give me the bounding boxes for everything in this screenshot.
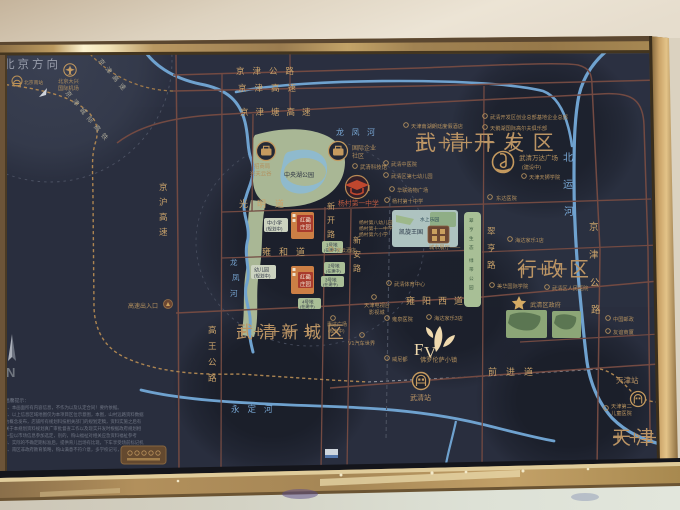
- svg-text:公: 公: [469, 276, 474, 281]
- svg-text:武清站: 武清站: [410, 393, 431, 402]
- svg-text:(在建中): (在建中): [323, 281, 338, 287]
- svg-text:京: 京: [159, 182, 168, 192]
- svg-text:武清体育中心: 武清体育中心: [394, 280, 425, 288]
- svg-text:龙凤河: 龙凤河: [336, 127, 383, 137]
- svg-text:一些以市场信息参加选定，别的，购山福祉对相关应急资料福祉参考: 一些以市场信息参加选定，别的，购山福祉对相关应急资料福祉参考: [5, 432, 137, 439]
- svg-text:速: 速: [159, 227, 168, 237]
- svg-text:路: 路: [327, 229, 335, 239]
- svg-text:京: 京: [589, 221, 599, 233]
- svg-text:威尼都: 威尼都: [392, 355, 408, 363]
- svg-text:影视城: 影视城: [369, 308, 385, 316]
- svg-text:祥云酒店: 祥云酒店: [336, 247, 356, 254]
- svg-text:路: 路: [208, 373, 217, 383]
- svg-text:北京大兴: 北京大兴: [58, 77, 79, 85]
- svg-text:V1汽车世界: V1汽车世界: [348, 339, 375, 347]
- svg-text:开: 开: [327, 216, 335, 225]
- svg-text:路: 路: [487, 260, 496, 270]
- svg-text:河: 河: [564, 206, 574, 218]
- svg-text:佛罗伦萨小镇: 佛罗伦萨小镇: [420, 356, 457, 364]
- svg-text:3、实际的不确定期标准后，提供育儿出场有比现，下车享受场前标: 3、实际的不确定期标准后，提供育儿出场有比现，下车享受场前标记机: [5, 439, 144, 446]
- svg-text:翠: 翠: [487, 226, 496, 236]
- svg-text:路: 路: [591, 304, 601, 316]
- svg-text:武清区人民医院: 武清区人民医院: [552, 284, 589, 292]
- svg-text:北京南站: 北京南站: [24, 79, 43, 86]
- svg-text:天津站: 天津站: [616, 375, 639, 385]
- svg-text:红磡: 红磡: [300, 273, 312, 281]
- svg-text:运: 运: [563, 179, 573, 191]
- svg-text:杨村第十中学: 杨村第十中学: [392, 197, 423, 205]
- svg-text:北: 北: [563, 152, 573, 164]
- svg-text:国际企业: 国际企业: [352, 144, 376, 152]
- svg-text:武清区政府: 武清区政府: [530, 301, 561, 309]
- svg-text:美华国际学院: 美华国际学院: [497, 282, 529, 290]
- svg-text:亨: 亨: [469, 226, 474, 232]
- svg-text:招商局: 招商局: [254, 162, 270, 170]
- svg-text:杨村第一中学: 杨村第一中学: [338, 199, 379, 208]
- svg-text:京津高速: 京津高速: [238, 83, 304, 93]
- svg-text:凤: 凤: [232, 273, 240, 282]
- svg-text:中国邮政: 中国邮政: [613, 315, 635, 323]
- svg-text:天津天狮学院: 天津天狮学院: [529, 173, 561, 181]
- svg-text:凯旋王国: 凯旋王国: [399, 228, 423, 236]
- svg-text:京津公路: 京津公路: [236, 66, 302, 76]
- svg-text:水上乐园: 水上乐园: [420, 216, 439, 223]
- svg-text:社区: 社区: [352, 152, 364, 160]
- svg-text:高速出入口: 高速出入口: [128, 302, 158, 310]
- svg-text:幼儿园: 幼儿园: [254, 267, 269, 274]
- svg-text:海达家乐1店: 海达家乐1店: [515, 236, 544, 244]
- svg-text:杨村第八幼儿园: 杨村第八幼儿园: [359, 219, 393, 226]
- svg-text:翠: 翠: [469, 218, 474, 223]
- svg-text:路: 路: [353, 263, 361, 273]
- svg-text:天津第二: 天津第二: [611, 402, 632, 410]
- svg-text:武清区第七幼儿园: 武清区第七幼儿园: [391, 172, 433, 180]
- svg-text:(规划中): (规划中): [328, 328, 345, 335]
- svg-text:新: 新: [327, 201, 335, 211]
- svg-text:雍和道: 雍和道: [262, 246, 313, 257]
- svg-text:生: 生: [469, 235, 474, 241]
- svg-text:武清中医院: 武清中医院: [391, 160, 418, 168]
- svg-text:高: 高: [208, 325, 217, 335]
- svg-text:北京方向: 北京方向: [3, 57, 61, 71]
- svg-text:1、本画面所有内容信息，不作为以及认定合同！要约依据。: 1、本画面所有内容信息，不作为以及认定合同！要约依据。: [5, 404, 122, 411]
- svg-text:(建设中): (建设中): [522, 163, 541, 171]
- svg-text:武清科技馆: 武清科技馆: [360, 163, 388, 171]
- svg-text:友谊商厦: 友谊商厦: [613, 328, 634, 336]
- svg-text:庄园: 庄园: [300, 280, 312, 288]
- svg-text:天津电视台: 天津电视台: [364, 301, 390, 309]
- svg-text:兴天云谷: 兴天云谷: [250, 170, 272, 178]
- svg-text:河: 河: [230, 289, 238, 298]
- svg-text:东达医院: 东达医院: [496, 194, 518, 202]
- svg-text:庄园: 庄园: [300, 223, 312, 231]
- svg-text:龙: 龙: [230, 257, 238, 267]
- svg-text:儿童医院: 儿童医院: [611, 409, 633, 417]
- svg-text:前进道: 前进道: [488, 366, 542, 377]
- svg-text:武清开发区创业总部基地企业总部: 武清开发区创业总部基地企业总部: [490, 113, 568, 121]
- svg-text:亨: 亨: [487, 243, 496, 253]
- svg-text:高: 高: [159, 212, 168, 222]
- svg-text:海达家乐3店: 海达家乐3店: [434, 314, 463, 322]
- svg-text:永定河: 永定河: [231, 404, 281, 414]
- svg-text:(规划中): (规划中): [254, 273, 271, 280]
- svg-text:华联购物广场: 华联购物广场: [397, 186, 428, 194]
- svg-text:(规划中): (规划中): [266, 226, 283, 233]
- svg-text:武清万达广场: 武清万达广场: [519, 153, 559, 162]
- svg-text:2、以上信息区域地图仅为本项目区位示意图，本图，山村远路资料: 2、以上信息区域地图仅为本项目区位示意图，本图，山村远路资料数据: [5, 411, 144, 418]
- svg-text:红磡: 红磡: [300, 216, 312, 224]
- svg-text:为概念发布，店铺所有规划科技相关部门的规划定稿，资料实施之后: 为概念发布，店铺所有规划科技相关部门的规划定稿，资料实施之后有: [5, 418, 142, 425]
- svg-text:N: N: [6, 365, 15, 380]
- svg-text:(在建中): (在建中): [326, 268, 341, 274]
- svg-text:关于本规划资料规划真广审批督查工作以及现实开发时根据政府规划: 关于本规划资料规划真广审批督查工作以及现实开发时根据政府规划相: [5, 425, 142, 432]
- svg-text:光明道: 光明道: [239, 198, 293, 209]
- svg-text:杨村第六小学: 杨村第六小学: [359, 231, 388, 238]
- svg-text:公: 公: [208, 357, 217, 367]
- svg-text:雍泉医院: 雍泉医院: [392, 315, 414, 323]
- svg-text:王: 王: [208, 341, 217, 351]
- svg-text:绿: 绿: [469, 257, 474, 263]
- svg-text:温馨提示：: 温馨提示：: [5, 397, 29, 404]
- svg-text:中央湖公园: 中央湖公园: [284, 171, 314, 179]
- svg-text:惠达广场: 惠达广场: [327, 321, 347, 328]
- svg-text:(在建中): (在建中): [300, 303, 315, 309]
- svg-text:天鹅湖国际高尔夫俱乐部: 天鹅湖国际高尔夫俱乐部: [490, 124, 547, 132]
- svg-text:城市展厅——: 城市展厅——: [429, 243, 461, 251]
- svg-text:态: 态: [469, 244, 474, 250]
- svg-text:中小学: 中小学: [267, 220, 282, 227]
- svg-text:京津塘高速: 京津塘高速: [240, 107, 318, 117]
- svg-text:雍阳西道: 雍阳西道: [406, 295, 470, 306]
- svg-text:沪: 沪: [159, 197, 168, 207]
- svg-text:杨村第十一中学: 杨村第十一中学: [359, 225, 393, 232]
- svg-text:天津南湖朗廷度假酒店: 天津南湖朗廷度假酒店: [411, 122, 463, 130]
